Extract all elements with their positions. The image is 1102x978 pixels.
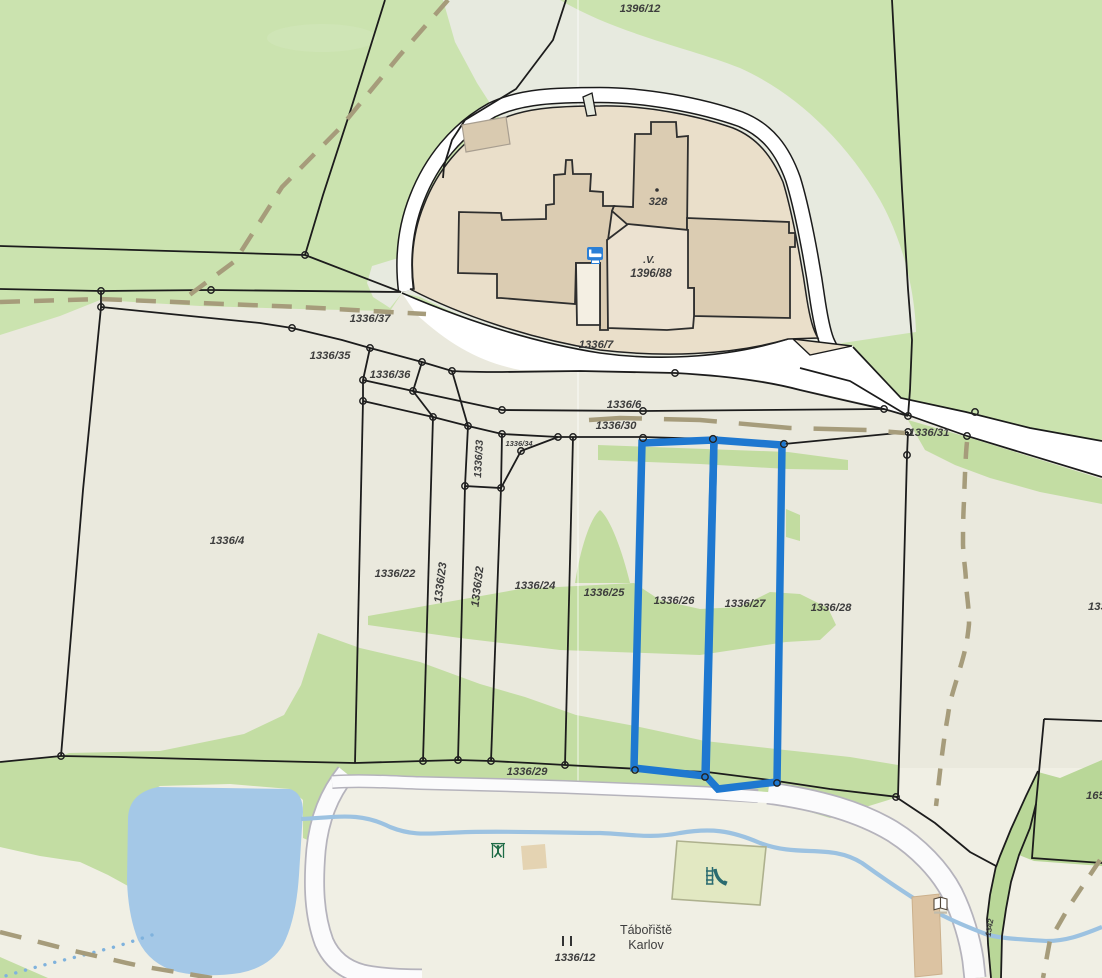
svg-text:1396/12: 1396/12 [620, 3, 662, 15]
svg-text:1336/27: 1336/27 [725, 598, 767, 610]
svg-text:1336/26: 1336/26 [654, 595, 696, 607]
svg-text:1336/7: 1336/7 [579, 339, 614, 351]
svg-text:328: 328 [649, 196, 669, 208]
svg-text:1336/30: 1336/30 [596, 420, 638, 432]
svg-text:1396/88: 1396/88 [630, 268, 672, 280]
svg-text:1336/21: 1336/21 [1088, 601, 1102, 613]
svg-text:.V.: .V. [643, 254, 655, 266]
svg-text:1336/35: 1336/35 [310, 350, 352, 362]
svg-text:Tábořiště: Tábořiště [620, 923, 672, 937]
svg-text:1336/31: 1336/31 [909, 427, 950, 439]
svg-text:1336/22: 1336/22 [375, 568, 417, 580]
svg-text:1336/25: 1336/25 [584, 587, 626, 599]
svg-text:1336/33: 1336/33 [472, 439, 486, 478]
svg-text:1336/36: 1336/36 [370, 369, 412, 381]
svg-text:1336/28: 1336/28 [811, 602, 853, 614]
svg-text:Karlov: Karlov [628, 938, 664, 952]
svg-text:1651: 1651 [1086, 790, 1102, 802]
svg-text:1336/29: 1336/29 [507, 766, 549, 778]
svg-text:1336/37: 1336/37 [350, 313, 392, 325]
svg-text:1336/4: 1336/4 [210, 535, 245, 547]
svg-text:1336/24: 1336/24 [515, 580, 557, 592]
svg-text:1336/12: 1336/12 [555, 952, 597, 964]
svg-text:1336/34: 1336/34 [505, 439, 533, 448]
svg-text:1336/6: 1336/6 [607, 399, 642, 411]
